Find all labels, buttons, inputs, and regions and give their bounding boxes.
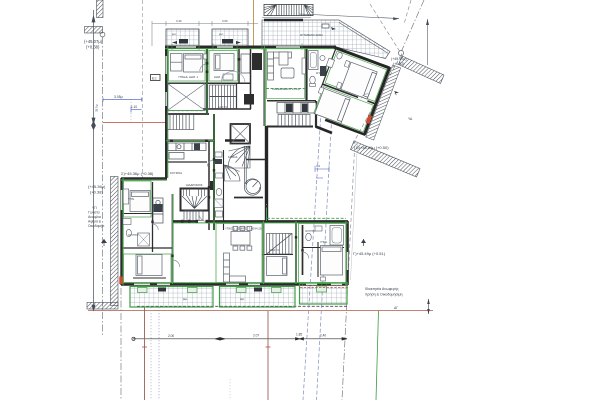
svg-text:ΚΛΙΜΑΚ.: ΚΛΙΜΑΚ.: [228, 156, 238, 159]
svg-text:Οικοδομήσ.: Οικοδομήσ.: [88, 224, 105, 228]
svg-text:(+45.07μ): (+45.07μ): [84, 39, 103, 44]
svg-text:Β)+45.46μ (+0.50): Β)+45.46μ (+0.50): [356, 145, 389, 150]
svg-text:2.07: 2.07: [253, 334, 259, 338]
svg-text:1.10: 1.10: [131, 105, 137, 109]
svg-text:2.00: 2.00: [168, 334, 174, 338]
svg-text:Σ)+45.36μ (+0.38): Σ)+45.36μ (+0.38): [121, 171, 154, 176]
svg-text:12x17.5: 12x17.5: [218, 106, 228, 109]
svg-text:Γωτιστα: Γωτιστα: [88, 211, 100, 215]
svg-text:φυτ.: φυτ.: [219, 33, 224, 36]
svg-text:ΕΞ: ΕΞ: [152, 76, 157, 80]
svg-text:ΛΟΥΤΡΟ: ΛΟΥΤΡΟ: [128, 234, 138, 237]
svg-text:W.C.: W.C.: [316, 72, 322, 75]
svg-text:βερ.: βερ.: [240, 297, 245, 301]
svg-text:ΚΑΘΕΔΝΕΔΛΑ 14.0τμ: ΚΑΘΕΔΝΕΔΛΑ 14.0τμ: [272, 87, 300, 91]
svg-text:Ιδιοκτησία Ανωφερής: Ιδιοκτησία Ανωφερής: [365, 287, 399, 291]
svg-text:(+45.36μ): (+45.36μ): [88, 184, 106, 189]
svg-text:ΦΥΤΕΜΕΝΟ ΔΩΜΑ: ΦΥΤΕΜΕΝΟ ΔΩΜΑ: [300, 33, 323, 37]
svg-text:(+0.38): (+0.38): [90, 190, 103, 195]
svg-text:Χρήση & Οικοδομήσιμη: Χρήση & Οικοδομήσιμη: [365, 293, 403, 297]
svg-text:Ανωφλια: Ανωφλια: [88, 215, 101, 219]
svg-text:ΥΠΝΔ.: ΥΠΝΔ.: [320, 241, 328, 244]
svg-text:ΥΔ: ΥΔ: [408, 117, 413, 121]
svg-text:10x17.5: 10x17.5: [270, 249, 280, 252]
svg-text:(+45.40μ): (+45.40μ): [391, 57, 407, 61]
svg-text:ΥΠΝΞΔ. ΔΞΜ. 1: ΥΠΝΞΔ. ΔΞΜ. 1: [178, 75, 199, 79]
svg-text:ΔΓ: ΔΓ: [394, 306, 398, 310]
svg-text:3.60: 3.60: [222, 19, 228, 23]
svg-text:ΔΙΑΔΡΟΜΟΣ: ΔΙΑΔΡΟΜΟΣ: [186, 183, 203, 187]
svg-text:ΚΟΥΖΙΝΑ: ΚΟΥΖΙΝΑ: [170, 171, 182, 175]
svg-text:2.40: 2.40: [320, 334, 326, 338]
svg-text:ΥΠΝ.: ΥΠΝ.: [128, 197, 135, 201]
svg-text:ΥΠ: ΥΠ: [92, 206, 97, 210]
svg-text:φυτ.: φυτ.: [172, 33, 177, 36]
svg-text:1.85: 1.85: [296, 333, 302, 337]
svg-text:3.05μ: 3.05μ: [114, 95, 123, 99]
svg-text:ΥΠΝΞΔ. ΔΞΜΑΤΙΞ 3.00Χ4.25: ΥΠΝΞΔ. ΔΞΜΑΤΙΞ 3.00Χ4.25: [225, 227, 262, 231]
svg-text:3.30: 3.30: [176, 19, 182, 23]
svg-text:βερ.: βερ.: [183, 297, 188, 301]
svg-text:Γ)+45.49μ (+0.51): Γ)+45.49μ (+0.51): [353, 251, 386, 256]
svg-text:35.5μ: 35.5μ: [95, 104, 99, 112]
svg-text:ΛΟΥΤΡΟ: ΛΟΥΤΡΟ: [305, 230, 315, 233]
svg-text:(+0.38): (+0.38): [86, 45, 100, 50]
svg-text:3.0: 3.0: [316, 164, 321, 168]
svg-text:(+0.52): (+0.52): [393, 62, 405, 66]
svg-text:Αψηλά &: Αψηλά &: [88, 220, 102, 224]
